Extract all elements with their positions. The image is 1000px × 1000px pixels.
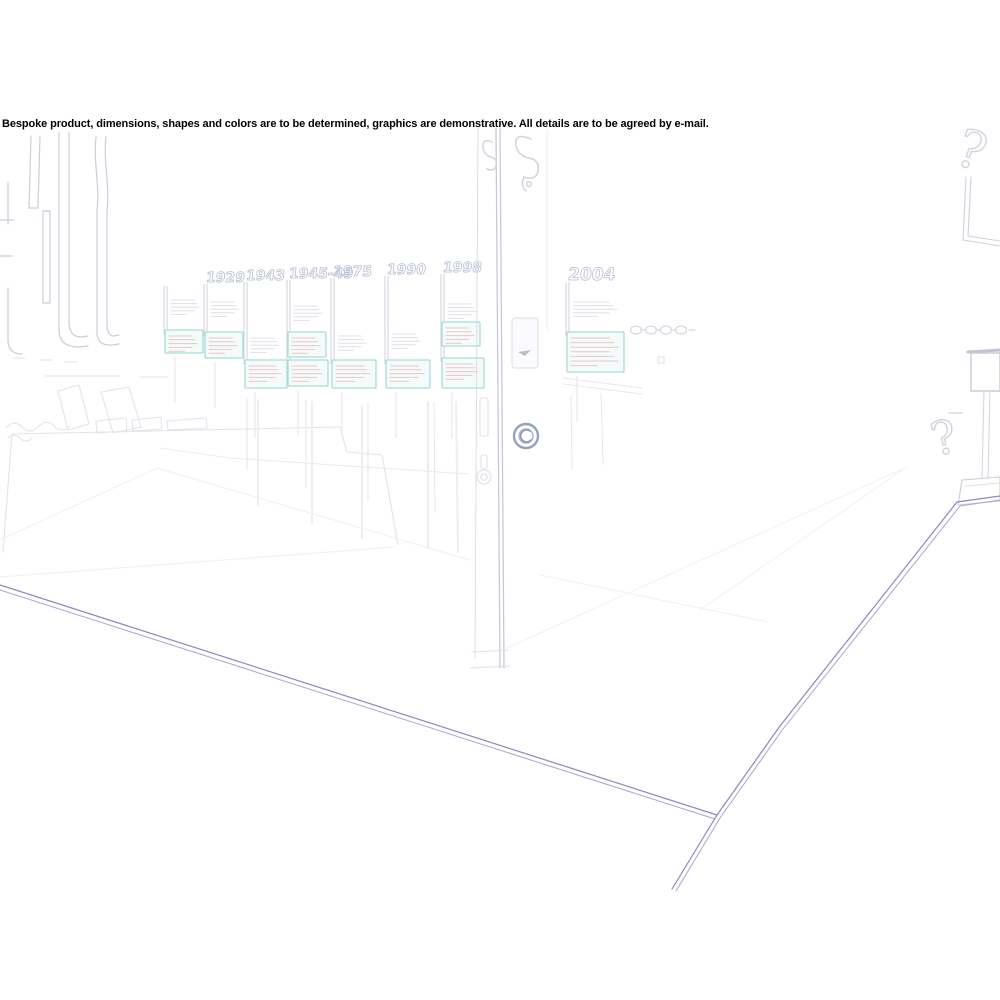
timeline-item: 1975 — [331, 264, 376, 438]
wall-signage-letters — [0, 133, 168, 377]
floor-edge-lines — [0, 496, 1000, 891]
right-wall-elements: ? ? — [926, 118, 1000, 505]
svg-text:1998: 1998 — [442, 260, 483, 276]
svg-text:?: ? — [926, 408, 963, 466]
wall-base-lines — [0, 467, 907, 648]
info-kiosk — [949, 350, 1000, 505]
svg-text:1943: 1943 — [245, 268, 286, 284]
timeline-item: 1943 — [244, 268, 287, 438]
door-lock — [514, 424, 538, 448]
wall-dot — [658, 357, 664, 363]
sketch-scene: 192919431945-491975199019982004 — [0, 0, 1000, 1000]
question-mark-top: ? — [949, 118, 994, 184]
question-mark-mid: ? — [926, 408, 963, 466]
svg-text:1929: 1929 — [205, 270, 246, 286]
timeline-wall: 192919431945-491975199019982004 — [164, 260, 624, 438]
counter-sketch — [0, 385, 398, 577]
svg-text:?: ? — [949, 118, 994, 184]
chain-graphic — [631, 326, 696, 334]
svg-text:1975: 1975 — [332, 264, 373, 280]
svg-text:2004: 2004 — [567, 265, 617, 285]
door-pillar — [470, 128, 547, 668]
timeline-item: 1945-49 — [287, 266, 354, 436]
door-switch-panel — [512, 318, 538, 368]
timeline-item: 1929 — [204, 270, 246, 408]
svg-text:1990: 1990 — [386, 262, 427, 278]
timeline-item: 1990 — [385, 262, 430, 438]
timeline-item-door-year: 2004 — [566, 265, 624, 422]
door-curl-ornaments — [483, 137, 538, 191]
product-image: Bespoke product, dimensions, shapes and … — [0, 0, 1000, 1000]
timeline-item — [164, 286, 203, 403]
picture-frame-corner — [963, 177, 1000, 246]
